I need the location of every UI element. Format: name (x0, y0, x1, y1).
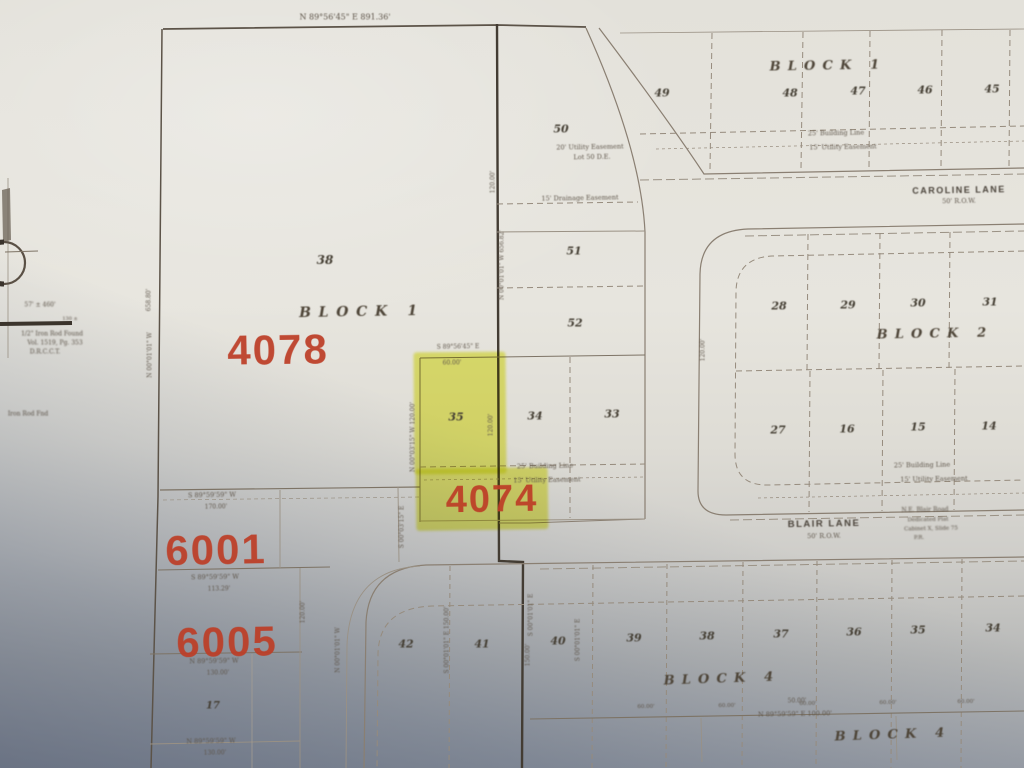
dim-6001-n: 170.00' (205, 503, 228, 510)
vbearing-east-line: N 00°01'01" W 656.82' (499, 230, 506, 300)
vdim-block2-w: 120.00' (700, 339, 707, 362)
vbearing-heavy-s1: S 00°01'01" E (528, 594, 535, 637)
easement-drainage: 15' Drainage Easement (541, 193, 618, 202)
lot-34b: 34 (985, 622, 1000, 635)
lot-52: 52 (567, 317, 582, 330)
margin-note-1: 57' ± 460' (24, 302, 55, 309)
street-caroline-label: CAROLINE LANE (912, 184, 1006, 196)
lot-27: 27 (770, 424, 785, 437)
bearing-lot17-s: N 89°59'59" W (186, 737, 235, 746)
lot-47: 47 (850, 85, 865, 98)
block1-left-label: BLOCK 1 (299, 303, 425, 321)
blair-note-1: N.E. Blair Road (901, 506, 948, 514)
block4-label-2: BLOCK 4 (834, 725, 951, 744)
lot-17: 17 (206, 701, 220, 712)
lot-33: 33 (604, 408, 619, 421)
vdim-west-line: 658.80' (146, 289, 153, 312)
dim-b4-4: 60.00' (879, 700, 896, 706)
lot-31: 31 (982, 296, 997, 309)
lot-50: 50 (553, 123, 568, 136)
lot-48: 48 (782, 87, 797, 100)
lot-39: 39 (626, 632, 641, 645)
easement-utility-mid: 15' Utility Easement (513, 475, 581, 484)
street-blair-row: 50' R.O.W. (807, 532, 841, 541)
margin-note-3: 1/2" Iron Rod Found (21, 331, 83, 338)
vbearing-lot42-w: S 00°01'01" E 150.00' (444, 606, 451, 673)
block2-label: BLOCK 2 (877, 325, 994, 342)
stamp-6001: 6001 (165, 525, 267, 575)
plat-photo: 4078407460016005BLOCK 1BLOCK 1BLOCK 2BLO… (0, 0, 1024, 768)
lot-40: 40 (550, 635, 565, 648)
bearing-6005-s: N 89°59'59" W (189, 657, 238, 666)
lot-41: 41 (474, 638, 489, 651)
street-caroline-row: 50' R.O.W. (942, 197, 976, 206)
block4-label: BLOCK 4 (663, 669, 780, 688)
plat-labels: 4078407460016005BLOCK 1BLOCK 1BLOCK 2BLO… (0, 0, 1024, 768)
easement-building-mid: 25' Building Line (517, 462, 573, 471)
lot-34: 34 (527, 410, 542, 423)
vdim-heavy-s1: 150.00' (525, 644, 532, 667)
block1-right-label: BLOCK 1 (770, 57, 887, 74)
lot-37: 37 (773, 628, 788, 641)
vdim-6005-e: 120.00' (300, 601, 307, 624)
bearing-lot35-top: S 89°56'45" E (437, 343, 480, 351)
vdim-east-line: 120.00' (490, 171, 497, 194)
lot-35-highlighted: 35 (448, 411, 463, 424)
dim-b4-2: 60.00' (718, 703, 735, 709)
margin-note-5: D.R.C.C.T. (30, 349, 61, 356)
lot-15: 15 (910, 421, 925, 434)
lot-16: 16 (839, 423, 854, 436)
blair-note-2: Dedicated Plat (907, 517, 948, 524)
vbearing-6005-e: N 00°01'01" W (335, 627, 342, 673)
lot-29: 29 (840, 299, 855, 312)
margin-note-6: Iron Rod Fnd (8, 411, 48, 418)
margin-note-4: Vol. 1519, Pg. 353 (27, 340, 82, 347)
stamp-4078: 4078 (227, 325, 329, 375)
easement-lot50-note: Lot 50 D.E. (573, 153, 610, 162)
vbearing-west-line: N 00°01'01" W (147, 332, 154, 378)
lot-49: 49 (654, 87, 669, 100)
blair-note-4: P.R. (914, 535, 924, 541)
dim-b4-3: 60.00' (799, 701, 816, 707)
easement-building-ne: 25' Building Line (808, 129, 864, 138)
lot-45: 45 (984, 83, 999, 96)
blair-note-3: Cabinet X, Slide 75 (904, 526, 958, 533)
dim-b4-5: 60.00' (957, 699, 974, 705)
margin-note-2: 130 ± (62, 316, 77, 322)
lot-51: 51 (566, 245, 581, 258)
lot-28: 28 (771, 300, 786, 313)
lot-14: 14 (981, 420, 996, 433)
dim-lot17-s: 130.00' (204, 749, 227, 756)
dim-6001-s: 113.29' (208, 585, 231, 592)
bearing-top: N 89°56'45" E 891.36' (299, 13, 390, 22)
bearing-6001-n: S 89°59'59" W (188, 491, 236, 500)
lot-35b: 35 (910, 624, 925, 637)
dim-lot35: 60.00' (443, 359, 462, 366)
dim-b4-1: 60.00' (637, 704, 654, 710)
lot-38b: 38 (699, 630, 714, 643)
bearing-6001-s: S 89°59'59" W (191, 573, 239, 582)
vbearing-lot40-w: S 00°01'01" E (575, 619, 582, 662)
street-blair-label: BLAIR LANE (788, 518, 861, 530)
bearing-b4-s: N 89°59'59" E 100.00' (758, 709, 832, 718)
easement-utility-lot50: 20' Utility Easement (556, 142, 624, 151)
easement-utility-ne: 15' Utility Easement (809, 142, 877, 151)
vbearing-lot35-w: N 00°03'15" W 120.00' (410, 402, 417, 472)
easement-utility-b2: 15' Utility Easement (900, 474, 968, 483)
lot-38: 38 (317, 253, 334, 267)
dim-6005-s: 130.00' (207, 669, 230, 676)
lot-42: 42 (398, 638, 413, 651)
lot-36: 36 (846, 626, 861, 639)
lot-46: 46 (917, 84, 932, 97)
vbearing-6001-e: S 00°03'15" E (399, 506, 406, 549)
vdim-lot35-e: 120.00' (488, 414, 495, 437)
easement-building-b2: 25' Building Line (894, 461, 950, 470)
lot-30: 30 (910, 297, 925, 310)
